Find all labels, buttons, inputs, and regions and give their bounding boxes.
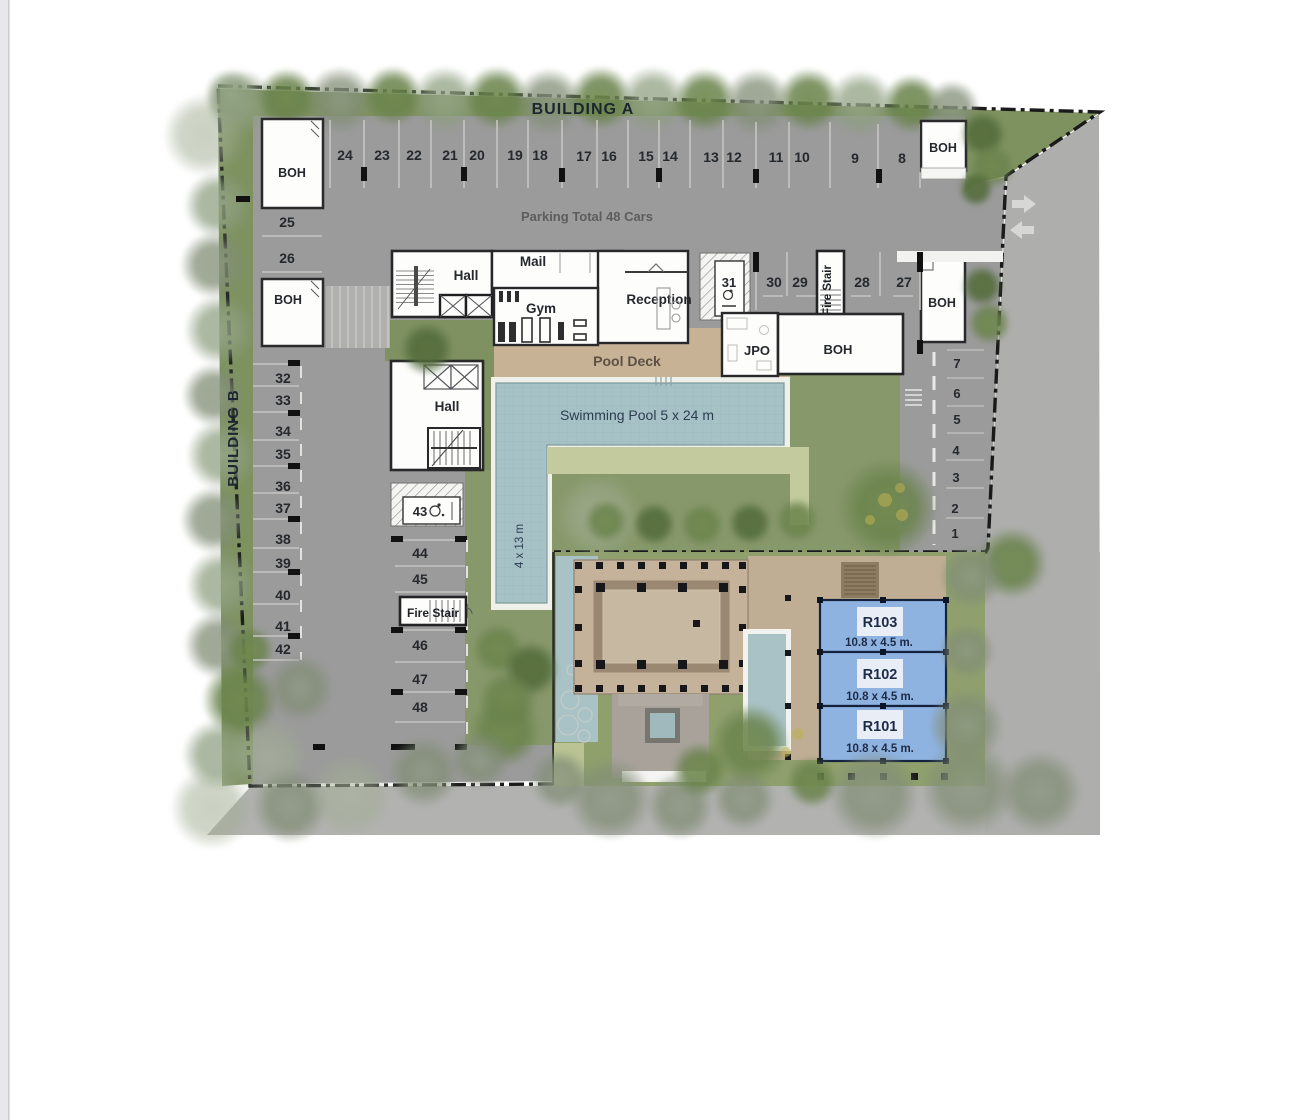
svg-text:R101: R101	[863, 719, 898, 735]
svg-text:21: 21	[442, 147, 458, 163]
svg-text:9: 9	[851, 150, 859, 166]
svg-text:13: 13	[703, 149, 719, 165]
svg-text:2: 2	[951, 501, 958, 516]
svg-text:47: 47	[412, 671, 428, 687]
svg-text:38: 38	[275, 531, 291, 547]
svg-text:3: 3	[952, 470, 959, 485]
svg-text:30: 30	[766, 274, 782, 290]
svg-text:Reception: Reception	[626, 292, 691, 307]
svg-text:JPO: JPO	[744, 343, 770, 358]
svg-text:1: 1	[951, 526, 958, 541]
svg-text:14: 14	[662, 148, 678, 164]
svg-text:28: 28	[854, 274, 870, 290]
svg-text:BUILDING A: BUILDING A	[532, 101, 635, 118]
svg-text:15: 15	[638, 148, 654, 164]
svg-text:35: 35	[275, 446, 291, 462]
svg-text:BUILDING B: BUILDING B	[225, 389, 242, 487]
svg-text:10.8 x 4.5 m.: 10.8 x 4.5 m.	[845, 637, 913, 649]
svg-text:BOH: BOH	[274, 293, 302, 307]
svg-text:41: 41	[275, 618, 291, 634]
svg-text:17: 17	[576, 148, 592, 164]
svg-text:10: 10	[794, 149, 810, 165]
svg-text:Mail: Mail	[520, 254, 546, 269]
svg-text:39: 39	[275, 555, 291, 571]
svg-text:27: 27	[896, 274, 912, 290]
svg-text:42: 42	[275, 641, 291, 657]
svg-text:BOH: BOH	[929, 141, 957, 155]
svg-text:Pool Deck: Pool Deck	[593, 353, 661, 369]
svg-text:37: 37	[275, 500, 291, 516]
svg-text:Fire Stair: Fire Stair	[407, 606, 459, 620]
svg-text:19: 19	[507, 147, 523, 163]
svg-text:33: 33	[275, 392, 291, 408]
svg-text:5: 5	[953, 412, 960, 427]
svg-text:R102: R102	[863, 667, 898, 683]
svg-text:BOH: BOH	[824, 342, 853, 357]
svg-text:BOH: BOH	[928, 296, 956, 310]
svg-text:18: 18	[532, 147, 548, 163]
svg-text:46: 46	[412, 637, 428, 653]
svg-text:6: 6	[953, 386, 960, 401]
svg-text:Hall: Hall	[435, 399, 460, 414]
svg-text:12: 12	[726, 149, 742, 165]
svg-text:25: 25	[279, 214, 295, 230]
svg-text:20: 20	[469, 147, 485, 163]
svg-text:45: 45	[412, 571, 428, 587]
svg-text:4 x 13 m: 4 x 13 m	[514, 524, 526, 568]
svg-text:31: 31	[722, 275, 736, 290]
svg-text:29: 29	[792, 274, 808, 290]
svg-text:26: 26	[279, 250, 295, 266]
svg-text:36: 36	[275, 478, 291, 494]
svg-text:32: 32	[275, 370, 291, 386]
svg-text:Parking Total 48 Cars: Parking Total 48 Cars	[521, 209, 653, 224]
svg-text:8: 8	[898, 150, 906, 166]
svg-text:Hall: Hall	[454, 268, 479, 283]
svg-text:48: 48	[412, 699, 428, 715]
svg-text:44: 44	[412, 545, 428, 561]
svg-text:7: 7	[953, 356, 960, 371]
svg-text:24: 24	[337, 147, 353, 163]
svg-text:34: 34	[275, 423, 291, 439]
svg-text:10.8 x 4.5 m.: 10.8 x 4.5 m.	[846, 691, 914, 703]
svg-text:4: 4	[952, 443, 960, 458]
svg-text:Gym: Gym	[526, 301, 556, 316]
svg-text:22: 22	[406, 147, 422, 163]
svg-text:16: 16	[601, 148, 617, 164]
svg-text:40: 40	[275, 587, 291, 603]
svg-text:11: 11	[769, 149, 784, 165]
svg-text:43: 43	[413, 504, 427, 519]
svg-text:BOH: BOH	[278, 166, 306, 180]
svg-text:Swimming Pool 5 x 24 m: Swimming Pool 5 x 24 m	[560, 407, 714, 423]
svg-text:23: 23	[374, 147, 390, 163]
svg-text:R103: R103	[863, 615, 898, 631]
svg-text:Fire Stair: Fire Stair	[822, 265, 834, 315]
